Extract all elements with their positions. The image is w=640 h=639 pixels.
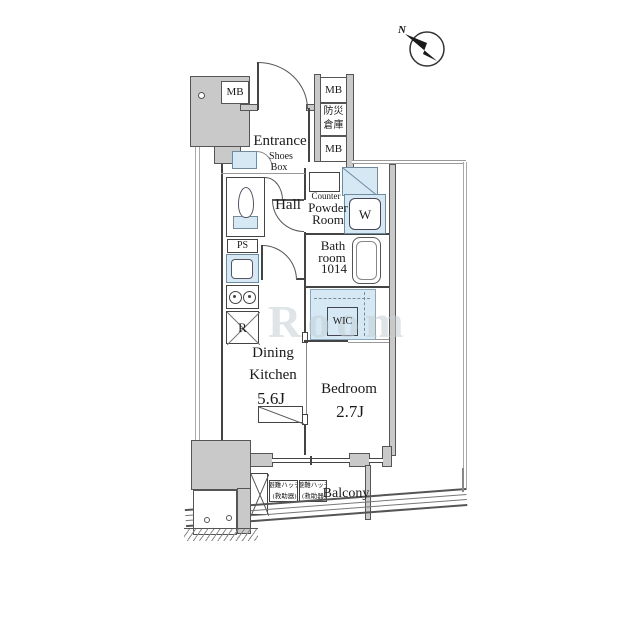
- wall-left-outer: [195, 147, 200, 452]
- evacuation-hatch-1-label-1: 避難ハッチ: [270, 481, 298, 492]
- powder-counter-box: [309, 172, 340, 192]
- bathtub: [352, 237, 381, 284]
- washer-label: W: [349, 198, 381, 230]
- floor-plan: MB MB 防災 倉庫 MB Entrance Shoes Box Hall: [0, 0, 640, 639]
- refrigerator-label: R: [226, 311, 259, 344]
- wall-bottom-pier-left: [249, 453, 273, 467]
- wall-bath-wic-divider: [304, 286, 390, 288]
- entrance-door-arc: [258, 62, 308, 109]
- dining-table: [258, 406, 303, 423]
- kitchen-sink: [231, 259, 253, 279]
- hall-dk-door-leaf: [261, 245, 263, 280]
- equipment-circle-2: [226, 515, 232, 521]
- stove-unit: [226, 285, 259, 309]
- dk-size-label: 5.6J: [252, 390, 290, 407]
- powder-door-panel: [342, 167, 378, 196]
- balcony-railing-end: [462, 468, 464, 492]
- powder-room-label-2: Room: [307, 213, 349, 226]
- wall-hall-dk-seg: [297, 278, 305, 280]
- wall-mb-column-right: [346, 74, 354, 168]
- compass: N: [396, 22, 458, 78]
- hall-label: Hall: [270, 197, 306, 213]
- toilet-bowl: [238, 187, 254, 218]
- window-mullion: [310, 456, 312, 465]
- balcony-label: Balcony: [315, 486, 377, 501]
- dk-label-1: Dining: [248, 346, 298, 361]
- hall-dk-door-arc: [262, 245, 297, 280]
- wall-top-right-thin: [352, 160, 466, 164]
- evacuation-hatch-1: 避難ハッチ (救助器): [269, 480, 298, 502]
- pipe-space-label: PS: [227, 239, 258, 253]
- wall-entrance-top-a: [240, 104, 258, 111]
- wall-rooms-left: [221, 164, 223, 455]
- dk-label-2: Kitchen: [246, 368, 300, 383]
- entrance-label: Entrance: [248, 134, 312, 149]
- meter-box-top-left-label: MB: [221, 81, 249, 104]
- shoes-box: [232, 151, 257, 169]
- compass-north-label: N: [396, 24, 408, 36]
- entrance-door-leaf: [257, 62, 259, 110]
- entrance-step-line: [221, 173, 305, 174]
- ground-hatch: [184, 528, 258, 541]
- wic-label: WIC: [327, 307, 358, 336]
- wall-bottom-pier-right: [382, 446, 392, 467]
- shoes-box-label-2: Box: [264, 162, 294, 173]
- window-bedroom: [369, 458, 383, 463]
- bedroom-label: Bedroom: [320, 382, 378, 397]
- wall-peephole-circle: [198, 92, 205, 99]
- disaster-storage-label-1: 防災: [320, 106, 347, 118]
- meter-box-right-bottom-label: MB: [320, 136, 347, 162]
- bathroom-label-3: 1014: [316, 262, 352, 275]
- wall-spine-seg3: [304, 425, 306, 455]
- disaster-storage-label-2: 倉庫: [320, 120, 347, 132]
- shoes-box-label-1: Shoes: [264, 151, 298, 162]
- bedroom-size-label: 2.7J: [330, 402, 370, 420]
- stove-burner-right: [243, 291, 256, 304]
- wall-bottom-left-block: [191, 440, 251, 490]
- equipment-circle-1: [204, 517, 210, 523]
- watermark: Room: [268, 296, 518, 346]
- stove-burner-left: [229, 291, 242, 304]
- meter-box-right-top-label: MB: [320, 77, 347, 103]
